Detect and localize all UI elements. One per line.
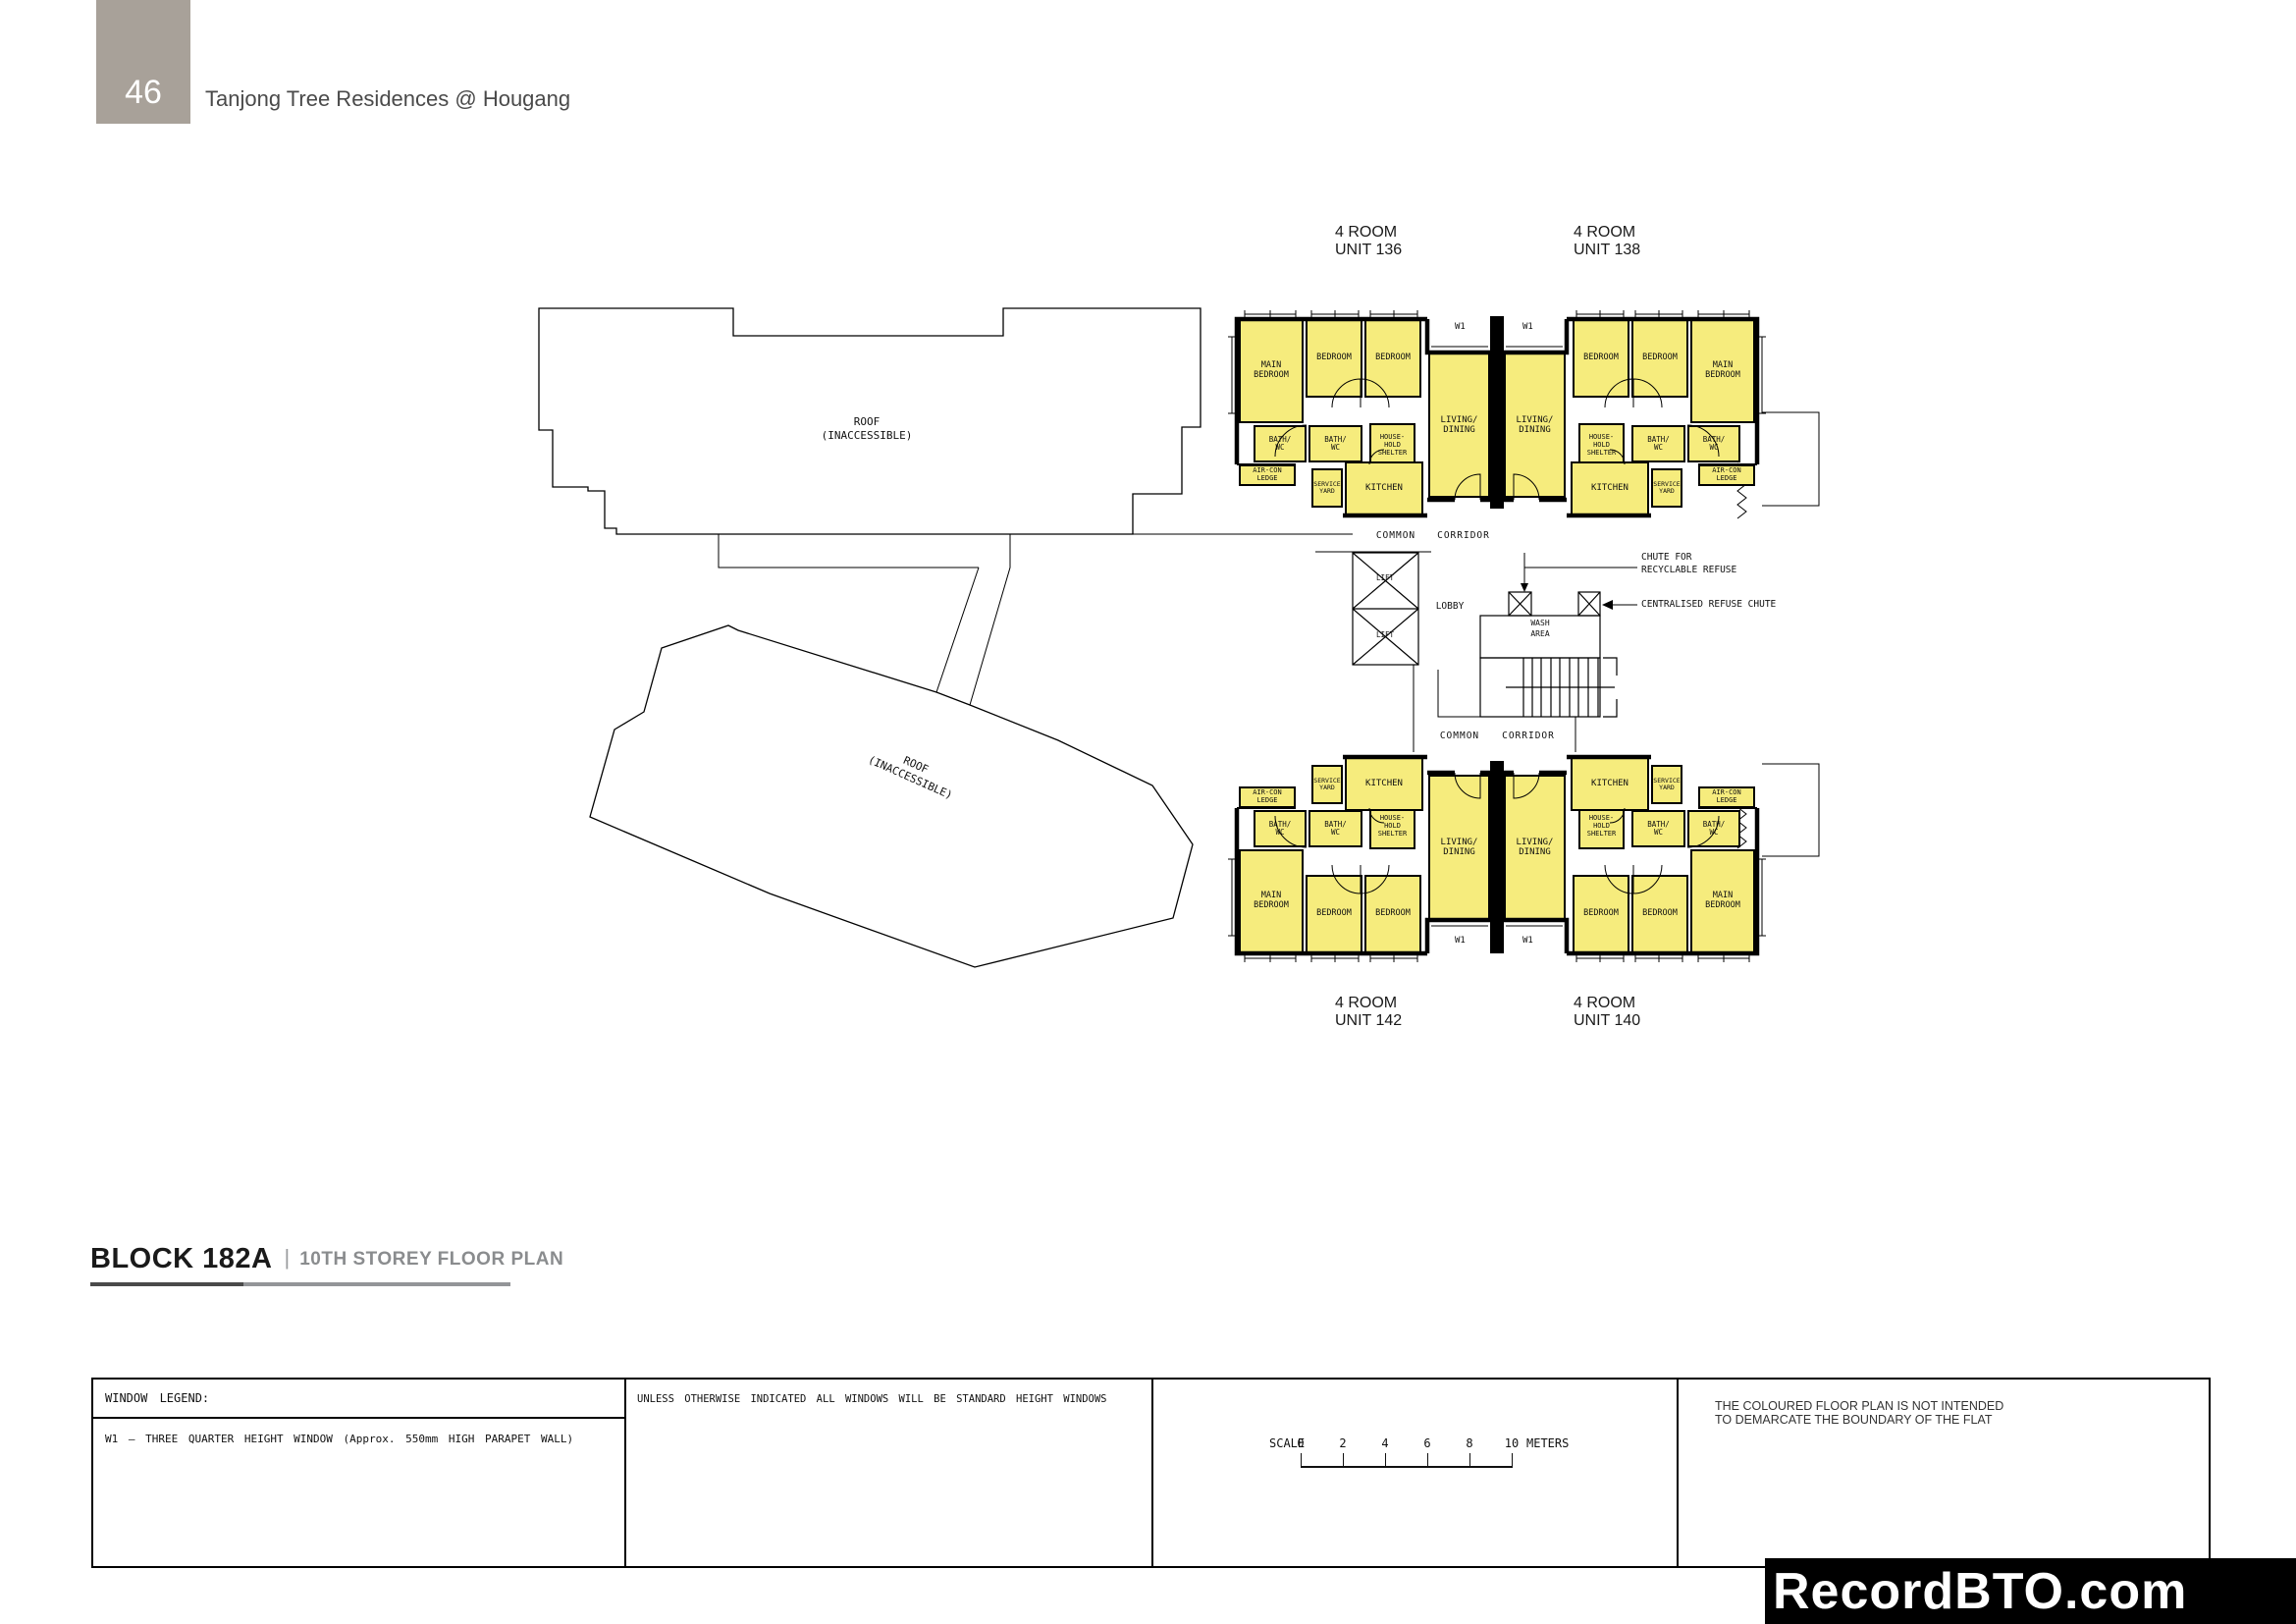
recyclable-chute-annotation: CHUTE FORRECYCLABLE REFUSE [1641,551,1736,576]
roof-label-lower: ROOF(INACCESSIBLE) [866,740,960,802]
lift-label: LIFT [1376,573,1394,582]
unit-142-label: 4 ROOMUNIT 142 [1335,995,1402,1030]
central-chute-annotation: CENTRALISED REFUSE CHUTE [1641,599,1776,610]
w1-label: W1 [1522,936,1533,946]
common-corridor-lower: CORRIDOR [1502,731,1555,741]
plan-labels-layer: 4 ROOMUNIT 1364 ROOMUNIT 1384 ROOMUNIT 1… [0,0,2296,1624]
w1-label: W1 [1455,936,1466,946]
common-corridor-upper: CORRIDOR [1437,530,1490,541]
roof-label-upper: ROOF(INACCESSIBLE) [822,415,913,443]
lobby-label: LOBBY [1436,601,1465,612]
unit-138-label: 4 ROOMUNIT 138 [1574,224,1640,259]
w1-label: W1 [1455,322,1466,332]
wash-area-label: WASHAREA [1530,618,1549,639]
common-corridor-upper: COMMON [1376,530,1415,541]
lift-label: LIFT [1376,630,1394,639]
brochure-page: 46 Tanjong Tree Residences @ Hougang MAI… [0,0,2296,1624]
unit-140-label: 4 ROOMUNIT 140 [1574,995,1640,1030]
common-corridor-lower: COMMON [1440,731,1479,741]
unit-136-label: 4 ROOMUNIT 136 [1335,224,1402,259]
w1-label: W1 [1522,322,1533,332]
